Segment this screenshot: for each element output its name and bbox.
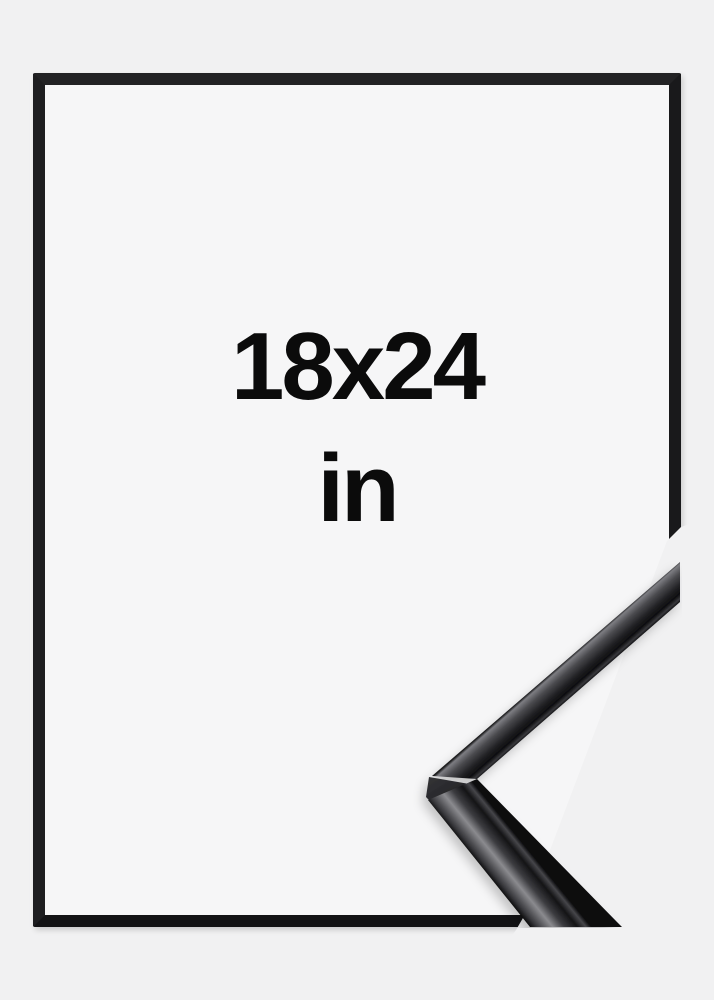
size-label: 18x24 in bbox=[33, 306, 681, 550]
size-dimensions: 18x24 bbox=[33, 306, 681, 428]
size-unit: in bbox=[33, 428, 681, 550]
product-image: 18x24 in bbox=[0, 0, 714, 1000]
